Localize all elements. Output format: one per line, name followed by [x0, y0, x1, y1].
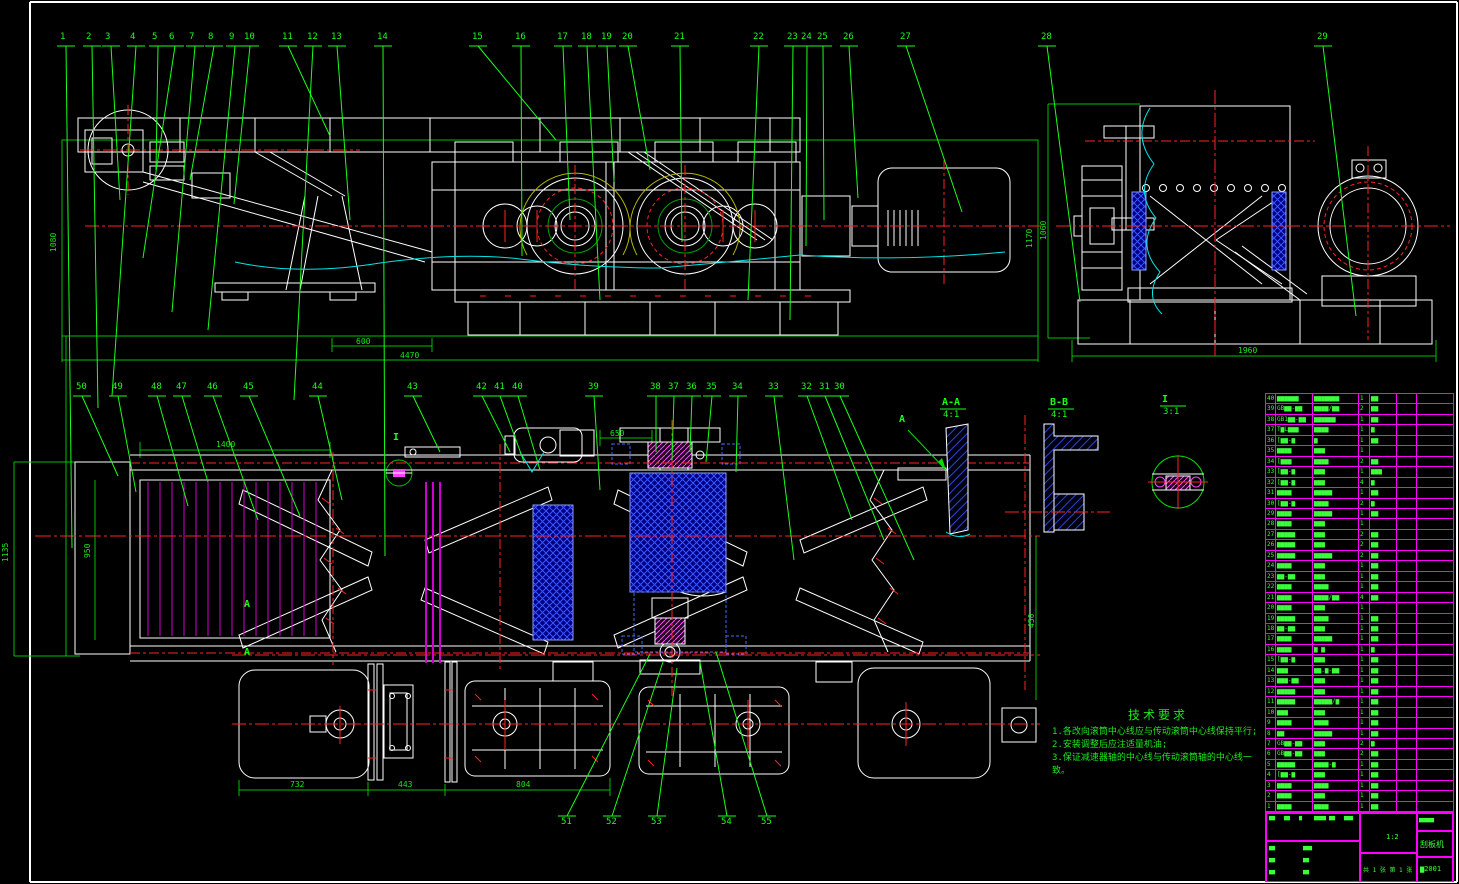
leader-line — [690, 396, 692, 452]
leader-line — [111, 46, 120, 200]
bom-cell: ▆▆▆▆ — [1276, 791, 1313, 800]
leader-line — [1047, 46, 1080, 302]
bom-cell-empty — [1417, 436, 1453, 445]
bom-cell — [1397, 593, 1417, 602]
bom-row[interactable]: 25▆▆▆▆▆▆▆▆▆▆2▆▆ — [1266, 551, 1453, 561]
bom-cell: 3 — [1266, 781, 1276, 790]
bom-cell: ▆▆▆▆ — [1276, 781, 1313, 790]
leader-line — [612, 662, 663, 816]
leader-line — [82, 396, 118, 476]
bom-cell: 1 — [1359, 519, 1370, 528]
callout-top-11: 11 — [282, 33, 293, 42]
callout-top-24: 24 — [801, 33, 812, 42]
callout-top-27: 27 — [900, 33, 911, 42]
dimension-value: 732 — [290, 781, 304, 789]
title-block-header-cell: ▆▆ — [1269, 815, 1275, 821]
bom-cell: 1 — [1359, 467, 1370, 476]
bom-row[interactable]: 10▆▆▆▆▆▆1▆▆ — [1266, 708, 1453, 718]
bom-cell — [1397, 499, 1417, 508]
leader-line — [563, 46, 570, 220]
section-label-B-B: B-B — [1050, 398, 1068, 408]
bom-cell: ▆▆ — [1370, 687, 1397, 696]
bom-row[interactable]: 30[▆▆-▆▆▆▆▆2▆ — [1266, 499, 1453, 509]
bom-cell: [▆▆▆ — [1276, 457, 1313, 466]
bom-cell-empty — [1417, 478, 1453, 487]
leader-line — [500, 396, 524, 462]
callout-mid-32: 32 — [801, 383, 812, 392]
leader-line — [906, 46, 962, 212]
leader-line — [172, 46, 195, 312]
bom-row[interactable]: 14▆▆▆▆▆.▆-▆▆1▆▆ — [1266, 666, 1453, 676]
title-block-header-cell: ▆▆ — [1329, 815, 1335, 821]
bom-cell-empty — [1417, 781, 1453, 790]
bom-row[interactable]: 27▆▆▆▆▆▆▆▆2▆▆ — [1266, 530, 1453, 540]
bom-cell: ▆▆ — [1370, 394, 1397, 403]
bom-row[interactable]: 6GB▆▆-▆▆▆▆▆2▆▆ — [1266, 749, 1453, 759]
bom-cell: ▆▆▆▆▆ — [1313, 509, 1359, 518]
bom-cell-empty — [1417, 645, 1453, 654]
title-block-header-cell: ▆▆▆▆ — [1314, 815, 1326, 821]
callout-top-23: 23 — [787, 33, 798, 42]
bom-cell: 34 — [1266, 457, 1276, 466]
leader-line — [806, 46, 807, 246]
title-block-header-cell: ▆▆▆ — [1344, 815, 1353, 821]
callout-top-18: 18 — [581, 33, 592, 42]
bom-cell: 1 — [1359, 802, 1370, 811]
bom-row[interactable]: 26▆▆▆▆▆▆▆▆2▆▆ — [1266, 540, 1453, 550]
leader-line — [657, 668, 677, 816]
bom-row[interactable]: 21▆▆▆▆▆▆▆▆/▆▆4▆▆ — [1266, 593, 1453, 603]
bom-cell — [1397, 791, 1417, 800]
bom-cell: 1 — [1359, 655, 1370, 664]
bom-cell — [1397, 530, 1417, 539]
callout-bottom-54: 54 — [721, 818, 732, 827]
callout-bottom-55: 55 — [761, 818, 772, 827]
bom-cell: 17 — [1266, 634, 1276, 643]
bom-row[interactable]: 3▆▆▆▆▆▆▆▆1▆▆ — [1266, 781, 1453, 791]
bom-cell-empty — [1417, 499, 1453, 508]
bom-cell-empty — [1417, 530, 1453, 539]
bom-cell: ▆▆ — [1370, 749, 1397, 758]
bom-cell: ▆▆▆ — [1370, 467, 1397, 476]
leader-line — [66, 46, 72, 548]
bom-cell: 27 — [1266, 530, 1276, 539]
leader-line — [112, 46, 136, 396]
callout-top-22: 22 — [753, 33, 764, 42]
bom-cell: ▆▆▆▆ — [1313, 425, 1359, 434]
cad-drawing-viewport[interactable]: 1234567891011121314151617181920212223242… — [0, 0, 1459, 884]
bom-cell-empty — [1417, 404, 1453, 413]
bom-row[interactable]: 33[▆▆-▆▆▆▆1▆▆▆ — [1266, 467, 1453, 477]
bom-cell: 9 — [1266, 718, 1276, 727]
bom-cell-empty — [1417, 614, 1453, 623]
bom-row[interactable]: 7GB▆▆-▆▆▆▆▆2▆ — [1266, 739, 1453, 749]
leader-line — [156, 46, 158, 170]
bom-cell: ▆▆▆▆ — [1276, 645, 1313, 654]
dimension-value: 1135 — [2, 543, 10, 562]
callout-mid-35: 35 — [706, 383, 717, 392]
bom-cell: GB▆▆-▆▆ — [1276, 749, 1313, 758]
callout-top-15: 15 — [472, 33, 483, 42]
bom-cell: ▆▆-▆▆ — [1276, 572, 1313, 581]
bom-cell — [1397, 676, 1417, 685]
bom-cell-empty — [1417, 561, 1453, 570]
bom-cell: ▆▆▆ — [1313, 478, 1359, 487]
bom-cell: 26 — [1266, 540, 1276, 549]
bom-cell: 5 — [1266, 760, 1276, 769]
bom-cell: ▆▆▆▆ — [1313, 457, 1359, 466]
bom-row[interactable]: 17▆▆▆▆▆▆▆▆▆1▆▆ — [1266, 634, 1453, 644]
bom-cell: 1 — [1359, 561, 1370, 570]
callout-mid-47: 47 — [176, 383, 187, 392]
bom-cell: ▆▆▆▆/▆▆ — [1313, 593, 1359, 602]
bom-row[interactable]: 16▆▆▆▆▆ ▆1▆ — [1266, 645, 1453, 655]
bom-row[interactable]: 12▆▆▆▆▆▆▆▆1▆▆ — [1266, 687, 1453, 697]
bom-cell: ▆▆▆▆▆ — [1276, 697, 1313, 706]
bom-cell-empty — [1417, 791, 1453, 800]
dimension-value: 1960 — [1238, 347, 1257, 355]
bom-cell: ▆ — [1370, 425, 1397, 434]
bom-cell: ▆▆▆ — [1313, 530, 1359, 539]
bom-cell: ▆▆▆▆▆ — [1276, 687, 1313, 696]
callout-mid-33: 33 — [768, 383, 779, 392]
bom-cell: ▆▆▆ — [1313, 708, 1359, 717]
bom-cell: 22 — [1266, 582, 1276, 591]
bom-cell: ▆▆▆▆▆/▆ — [1313, 697, 1359, 706]
bom-cell: ▆▆▆▆ — [1313, 781, 1359, 790]
bom-cell — [1370, 519, 1397, 528]
callout-top-25: 25 — [817, 33, 828, 42]
leader-line — [318, 396, 342, 500]
bom-cell: 20 — [1266, 603, 1276, 612]
bom-cell — [1397, 467, 1417, 476]
title-block-signature-cell: ▆▆▆ — [1303, 845, 1312, 851]
bom-cell: 2 — [1359, 551, 1370, 560]
bom-cell: ▆▆▆ — [1313, 624, 1359, 633]
bom-cell-empty — [1417, 729, 1453, 738]
bom-row[interactable]: 31▆▆▆▆▆▆▆▆▆1▆▆ — [1266, 488, 1453, 498]
leader-line — [790, 46, 793, 320]
bom-cell-empty — [1417, 655, 1453, 664]
callout-top-13: 13 — [331, 33, 342, 42]
dimension-value: 650 — [610, 430, 624, 438]
bom-cell: 36 — [1266, 436, 1276, 445]
bom-row[interactable]: 29▆▆▆▆▆▆▆▆▆1▆▆ — [1266, 509, 1453, 519]
bom-cell — [1397, 729, 1417, 738]
bom-row[interactable]: 8▆▆▆▆▆▆▆1▆▆ — [1266, 729, 1453, 739]
bom-cell: ▆▆.▆-▆▆ — [1313, 666, 1359, 675]
bom-cell: [▆▆-▆ — [1276, 436, 1313, 445]
leader-line — [249, 396, 300, 516]
bom-row[interactable]: 15[▆▆-▆▆▆▆1▆▆ — [1266, 655, 1453, 665]
leader-line — [672, 396, 674, 460]
callout-top-20: 20 — [622, 33, 633, 42]
callout-mid-42: 42 — [476, 383, 487, 392]
bom-cell: 4 — [1359, 478, 1370, 487]
bom-cell: 4 — [1266, 770, 1276, 779]
bom-cell: 1 — [1359, 718, 1370, 727]
leader-line — [716, 652, 767, 816]
bom-cell-empty — [1417, 551, 1453, 560]
bom-row[interactable]: 32[▆▆-▆▆▆▆4▆ — [1266, 478, 1453, 488]
bom-cell — [1397, 687, 1417, 696]
bom-row[interactable]: 34[▆▆▆▆▆▆▆2▆▆ — [1266, 457, 1453, 467]
bom-cell: GB▆▆-▆▆ — [1276, 404, 1313, 413]
leader-line — [478, 46, 556, 140]
bom-row[interactable]: 2▆▆▆▆▆▆▆1▆▆ — [1266, 791, 1453, 801]
bom-cell: 11 — [1266, 697, 1276, 706]
callout-top-26: 26 — [843, 33, 854, 42]
leader-line — [736, 396, 738, 472]
bom-cell — [1397, 655, 1417, 664]
bom-cell: 1 — [1359, 760, 1370, 769]
leader-line — [518, 396, 540, 470]
bom-row[interactable]: 19▆▆▆▆▆▆▆▆▆1▆▆ — [1266, 614, 1453, 624]
bom-row[interactable]: 11▆▆▆▆▆▆▆▆▆▆/▆1▆▆ — [1266, 697, 1453, 707]
callout-mid-37: 37 — [668, 383, 679, 392]
bom-cell: ▆▆▆▆▆ — [1313, 634, 1359, 643]
bom-cell: ▆▆▆▆ — [1313, 802, 1359, 811]
bom-cell: 18 — [1266, 624, 1276, 633]
company-name: ▆▆▆▆▆ — [1419, 817, 1434, 823]
bom-cell: 2 — [1359, 499, 1370, 508]
bom-cell: 12 — [1266, 687, 1276, 696]
bom-cell-empty — [1417, 394, 1453, 403]
bom-cell: 23 — [1266, 572, 1276, 581]
bom-cell: 16 — [1266, 645, 1276, 654]
section-label-I: I — [1162, 395, 1168, 405]
callout-mid-44: 44 — [312, 383, 323, 392]
callout-mid-49: 49 — [112, 383, 123, 392]
leader-line — [182, 396, 208, 482]
bom-cell: 1 — [1359, 791, 1370, 800]
bom-cell: ▆▆▆ — [1276, 666, 1313, 675]
bom-cell: ▆▆ — [1370, 561, 1397, 570]
bom-row[interactable]: 13▆▆▆-▆▆▆▆▆1▆▆ — [1266, 676, 1453, 686]
technical-requirement-item: 3.保证减速器轴的中心线与传动滚筒轴的中心线一致。 — [1052, 752, 1264, 778]
bom-cell: ▆▆▆ — [1313, 687, 1359, 696]
title-block-signature-cell: ▆▆ — [1269, 869, 1275, 875]
bom-cell: ▆▆▆ — [1313, 676, 1359, 685]
bom-cell: ▆▆ — [1370, 624, 1397, 633]
bom-row[interactable]: 9▆▆▆▆▆▆▆▆1▆▆ — [1266, 718, 1453, 728]
bom-cell — [1397, 603, 1417, 612]
sheet-count: 共 1 张 第 1 张 — [1363, 865, 1412, 874]
bom-cell: 1 — [1359, 676, 1370, 685]
bom-cell: 38 — [1266, 415, 1276, 424]
bom-cell-empty — [1417, 697, 1453, 706]
bom-cell: ▆▆▆▆▆▆▆ — [1313, 394, 1359, 403]
callout-mid-38: 38 — [650, 383, 661, 392]
bom-row[interactable]: 38GB1▆▆-▆▆▆▆▆▆▆▆1▆▆ — [1266, 415, 1453, 425]
bom-cell — [1397, 551, 1417, 560]
bom-cell: 2 — [1266, 791, 1276, 800]
bom-cell-empty — [1417, 540, 1453, 549]
bom-cell-empty — [1417, 634, 1453, 643]
bom-cell: ▆▆▆▆ — [1276, 603, 1313, 612]
callout-top-5: 5 — [152, 33, 157, 42]
bom-cell: ▆▆▆▆ — [1276, 446, 1313, 455]
bom-cell-empty — [1417, 718, 1453, 727]
bom-row[interactable]: 36[▆▆-▆▆1▆▆ — [1266, 436, 1453, 446]
drawing-number: ▆2001 — [1420, 865, 1441, 873]
detail-marker-A: A — [244, 600, 250, 610]
bom-cell — [1397, 425, 1417, 434]
bom-cell: 29 — [1266, 509, 1276, 518]
title-block-signature-cell: ▆▆ — [1269, 857, 1275, 863]
bom-row[interactable]: 4[▆▆-▆▆▆▆1▆▆ — [1266, 770, 1453, 780]
bom-cell-empty — [1417, 760, 1453, 769]
callout-bottom-51: 51 — [561, 818, 572, 827]
bom-cell — [1370, 446, 1397, 455]
bom-cell: 40 — [1266, 394, 1276, 403]
bom-cell: ▆ — [1370, 645, 1397, 654]
bom-cell: ▆▆▆▆▆ — [1276, 540, 1313, 549]
leader-line — [521, 46, 522, 256]
callout-top-14: 14 — [377, 33, 388, 42]
bom-cell: ▆▆ — [1370, 572, 1397, 581]
bom-cell — [1397, 718, 1417, 727]
bom-cell: ▆▆▆▆ — [1276, 488, 1313, 497]
bom-cell: ▆▆ — [1370, 593, 1397, 602]
bom-row[interactable]: 28▆▆▆▆▆▆▆1 — [1266, 519, 1453, 529]
bom-cell: ▆▆▆▆/▆▆ — [1313, 404, 1359, 413]
dimension-value: 600 — [356, 338, 370, 346]
bom-cell: 31 — [1266, 488, 1276, 497]
bom-cell: ▆▆ — [1370, 729, 1397, 738]
technical-requirements-list: 1.各改向滚筒中心线应与传动滚筒中心线保持平行;2.安装调整后应注适量机油;3.… — [1052, 726, 1264, 778]
leader-line — [587, 46, 600, 300]
callout-mid-30: 30 — [834, 383, 845, 392]
bom-cell: 7 — [1266, 739, 1276, 748]
callout-bottom-52: 52 — [606, 818, 617, 827]
bom-cell: 8 — [1266, 729, 1276, 738]
bom-cell: ▆▆ — [1370, 655, 1397, 664]
bom-cell: 24 — [1266, 561, 1276, 570]
callout-mid-50: 50 — [76, 383, 87, 392]
bom-cell-empty — [1417, 457, 1453, 466]
bom-cell: 14 — [1266, 666, 1276, 675]
bom-cell: ▆▆▆ — [1313, 446, 1359, 455]
bom-cell: ▆▆▆▆-▆ — [1313, 760, 1359, 769]
bom-cell: ▆▆▆ — [1313, 749, 1359, 758]
bom-cell: ▆▆▆▆ — [1276, 593, 1313, 602]
bom-cell: ▆▆▆▆▆ — [1276, 551, 1313, 560]
bom-cell: ▆▆ — [1370, 708, 1397, 717]
bom-row[interactable]: 20▆▆▆▆▆▆▆1 — [1266, 603, 1453, 613]
bom-cell: ▆ — [1370, 499, 1397, 508]
bom-row[interactable]: 18▆▆-▆▆▆▆▆1▆▆ — [1266, 624, 1453, 634]
bom-row[interactable]: 37T▆L▆▆▆▆▆▆▆1▆ — [1266, 425, 1453, 435]
bom-cell-empty — [1417, 593, 1453, 602]
bom-cell: ▆▆▆▆ — [1313, 499, 1359, 508]
bom-cell — [1397, 509, 1417, 518]
bom-row[interactable]: 1▆▆▆▆▆▆▆▆1▆▆ — [1266, 802, 1453, 811]
leader-line — [413, 396, 440, 452]
bom-cell: ▆▆▆▆ — [1313, 582, 1359, 591]
bom-row[interactable]: 23▆▆-▆▆▆▆▆1▆▆ — [1266, 572, 1453, 582]
bom-cell: 1 — [1266, 802, 1276, 811]
bom-row[interactable]: 40▆▆▆▆▆▆▆▆▆▆▆▆▆1▆▆ — [1266, 394, 1453, 404]
callout-top-7: 7 — [189, 33, 194, 42]
bom-row[interactable]: 22▆▆▆▆▆▆▆▆1▆▆ — [1266, 582, 1453, 592]
bom-cell: ▆▆ — [1370, 509, 1397, 518]
bom-cell: ▆▆▆▆ — [1276, 634, 1313, 643]
bom-cell: 2 — [1359, 739, 1370, 748]
bom-cell — [1397, 572, 1417, 581]
bom-cell: 4 — [1359, 593, 1370, 602]
bom-cell: ▆ — [1370, 739, 1397, 748]
bom-cell: 10 — [1266, 708, 1276, 717]
bom-cell: ▆▆▆▆▆ — [1276, 614, 1313, 623]
bom-cell: 1 — [1359, 509, 1370, 518]
bom-cell: T▆L▆▆▆ — [1276, 425, 1313, 434]
bom-cell-empty — [1417, 666, 1453, 675]
bom-cell: ▆▆ — [1370, 802, 1397, 811]
bom-cell: ▆▆ — [1370, 791, 1397, 800]
leader-line — [1323, 46, 1356, 316]
bom-cell: 1 — [1359, 645, 1370, 654]
bom-cell — [1397, 634, 1417, 643]
bom-cell: ▆▆▆▆▆ — [1313, 488, 1359, 497]
bom-cell: 6 — [1266, 749, 1276, 758]
leader-line — [157, 396, 188, 506]
section-scale: 4:1 — [1051, 411, 1067, 420]
callout-mid-48: 48 — [151, 383, 162, 392]
title-block-header-cell: ▆ — [1299, 815, 1302, 821]
callout-mid-45: 45 — [243, 383, 254, 392]
callout-top-1: 1 — [60, 33, 65, 42]
bom-cell — [1397, 770, 1417, 779]
bom-cell: 2 — [1359, 540, 1370, 549]
bom-cell: ▆ ▆ — [1313, 645, 1359, 654]
bom-cell: ▆▆▆▆ — [1276, 561, 1313, 570]
bom-cell: ▆▆ — [1370, 770, 1397, 779]
bom-cell: 1 — [1359, 708, 1370, 717]
signature-grid — [1266, 841, 1360, 881]
bom-cell: 19 — [1266, 614, 1276, 623]
dimension-value: 450 — [1028, 614, 1036, 628]
bom-cell: ▆▆ — [1370, 718, 1397, 727]
bom-cell: ▆▆ — [1370, 697, 1397, 706]
bom-cell-empty — [1417, 749, 1453, 758]
bom-cell: ▆▆▆ — [1313, 540, 1359, 549]
bom-row[interactable]: 5▆▆▆▆▆▆▆▆▆-▆1▆▆ — [1266, 760, 1453, 770]
scale-value: 1:2 — [1386, 833, 1399, 841]
bom-cell: 1 — [1359, 687, 1370, 696]
bom-cell: ▆▆▆ — [1313, 655, 1359, 664]
callout-top-8: 8 — [208, 33, 213, 42]
bom-row[interactable]: 24▆▆▆▆▆▆▆1▆▆ — [1266, 561, 1453, 571]
leader-line — [823, 46, 824, 220]
bom-cell: GB1▆▆-▆▆ — [1276, 415, 1313, 424]
bom-parts-table[interactable]: 40▆▆▆▆▆▆▆▆▆▆▆▆▆1▆▆39GB▆▆-▆▆▆▆▆▆/▆▆2▆▆38G… — [1265, 393, 1454, 812]
bom-cell: 1 — [1359, 614, 1370, 623]
bom-row[interactable]: 35▆▆▆▆▆▆▆1 — [1266, 446, 1453, 456]
callout-top-10: 10 — [244, 33, 255, 42]
bom-cell — [1397, 781, 1417, 790]
bom-cell-empty — [1417, 582, 1453, 591]
bom-cell — [1397, 457, 1417, 466]
section-scale: 3:1 — [1163, 408, 1179, 417]
bom-cell — [1397, 666, 1417, 675]
bom-cell-empty — [1417, 770, 1453, 779]
bom-cell — [1397, 708, 1417, 717]
bom-row[interactable]: 39GB▆▆-▆▆▆▆▆▆/▆▆2▆▆ — [1266, 404, 1453, 414]
technical-requirement-item: 1.各改向滚筒中心线应与传动滚筒中心线保持平行; — [1052, 726, 1264, 739]
bom-cell: ▆▆ — [1370, 404, 1397, 413]
bom-cell — [1397, 760, 1417, 769]
